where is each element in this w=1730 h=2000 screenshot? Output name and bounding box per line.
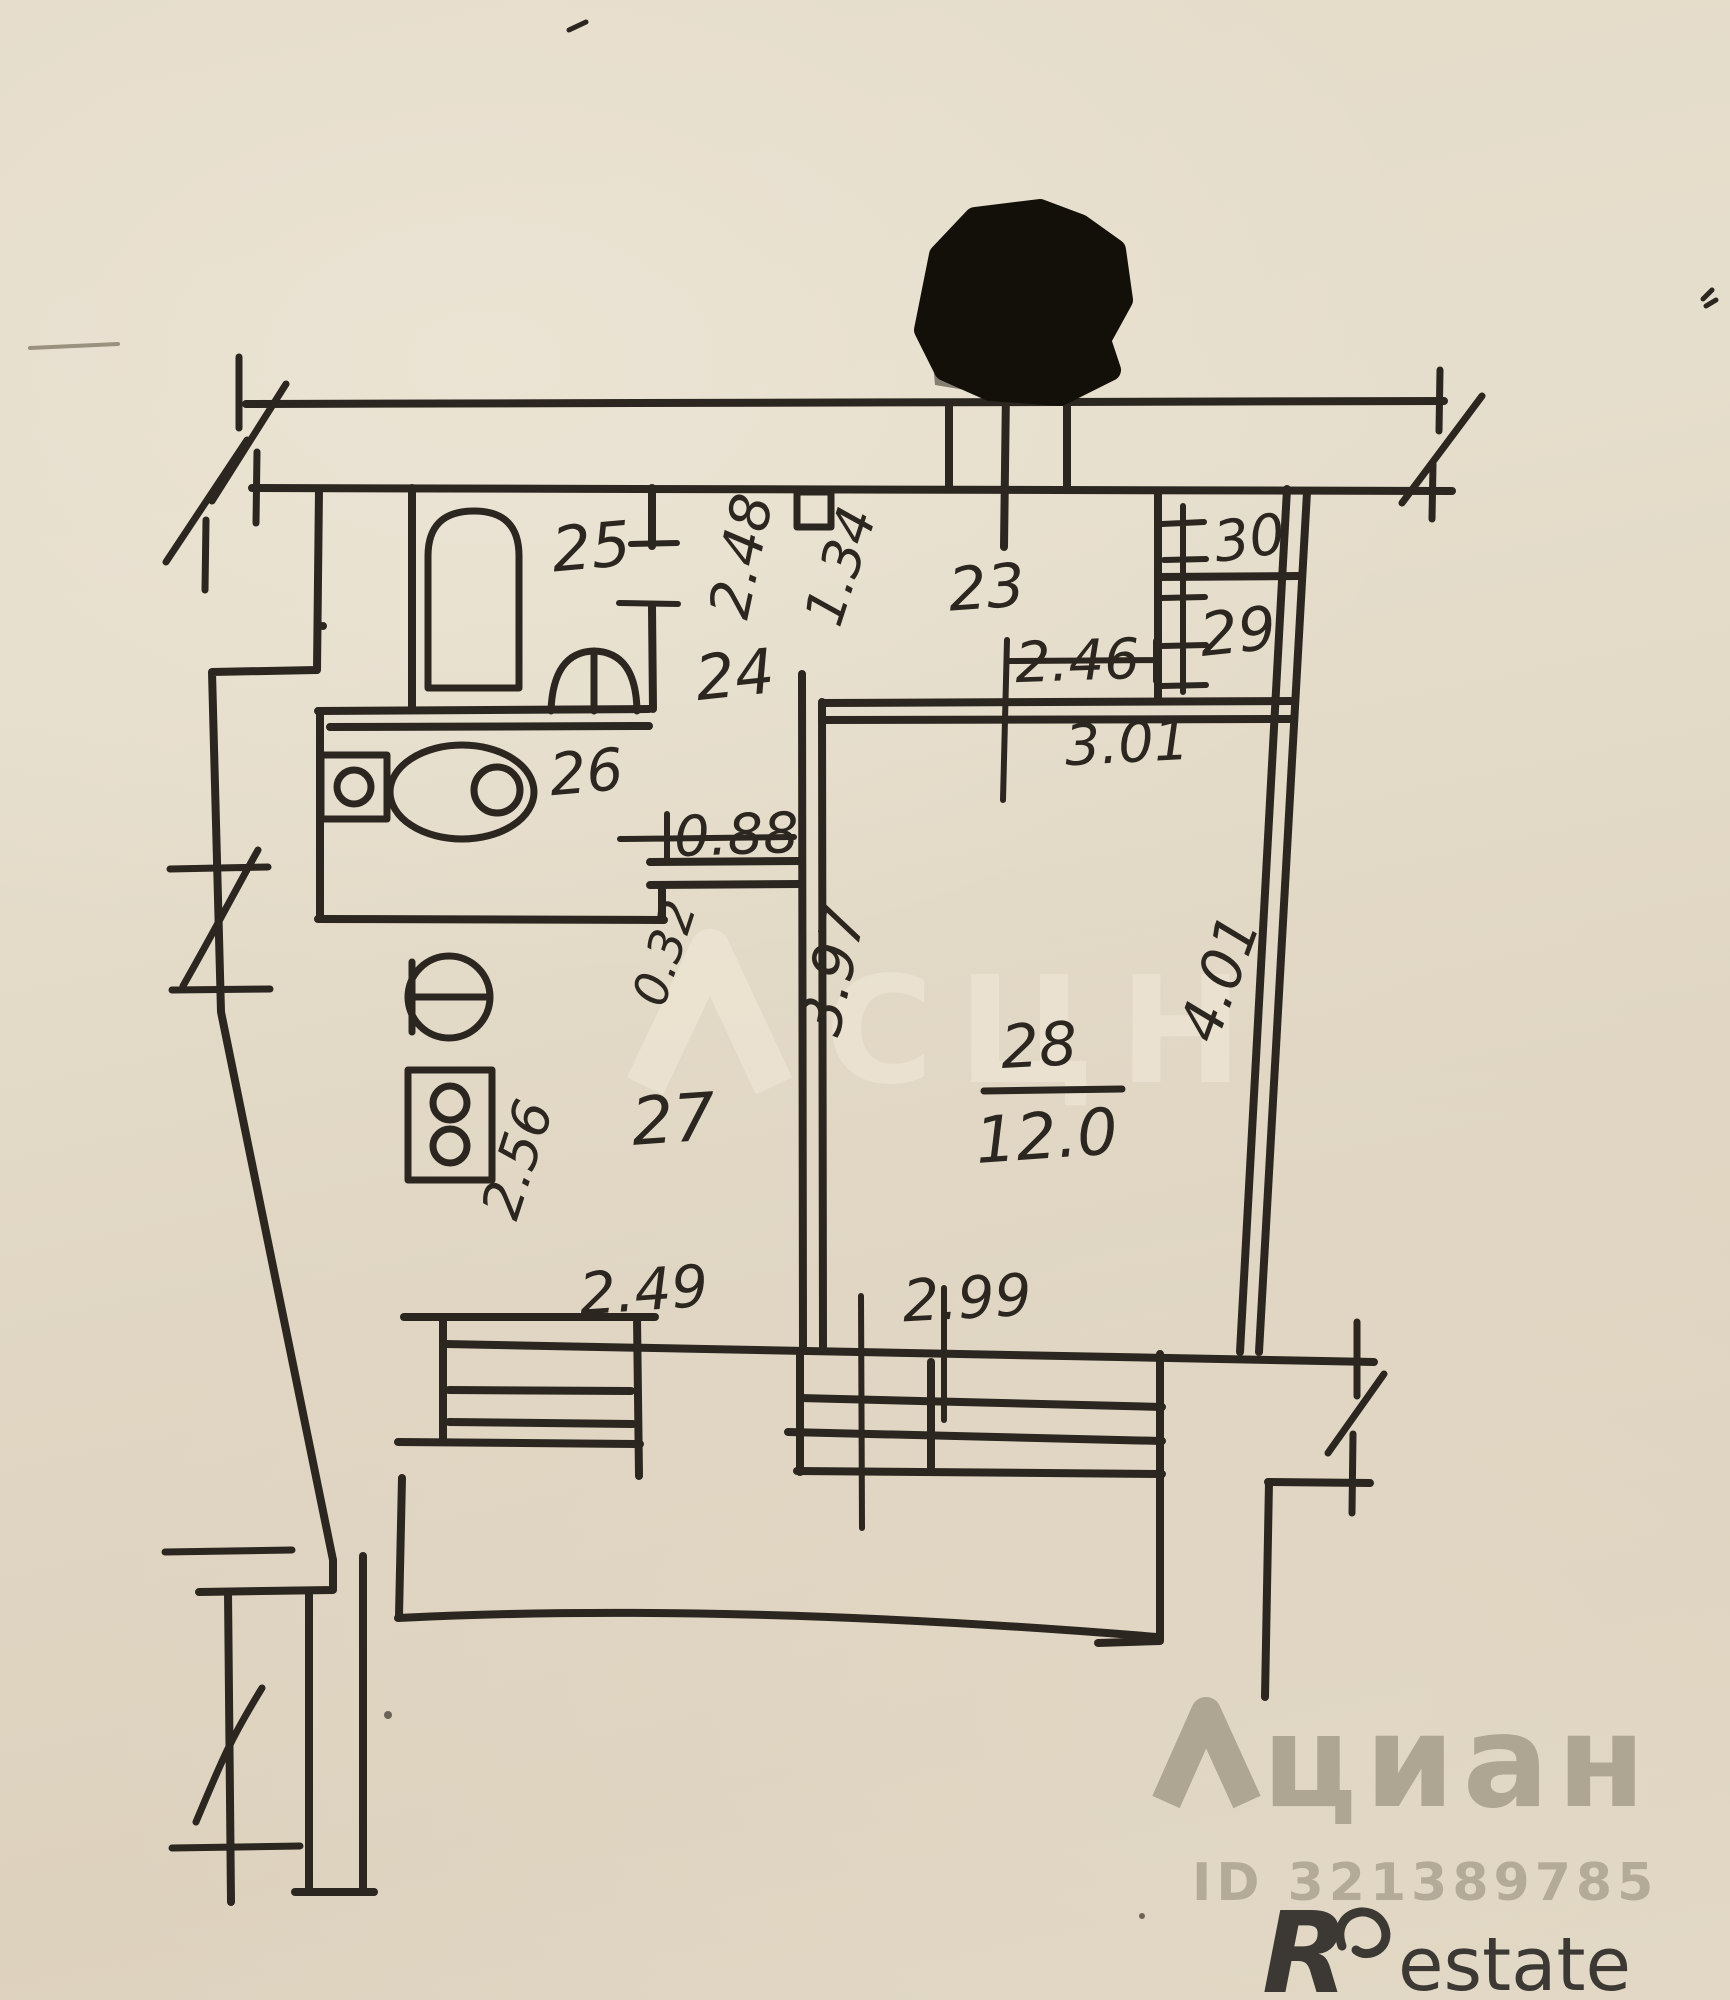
speck-dot-1 [319,622,327,630]
restate-logo-suffix: estate [1398,1922,1631,2000]
speck-right-edge [1703,290,1716,306]
watermark-cian: циан [1166,1688,1653,1837]
speck-top [569,22,586,30]
room-label-28: 28 [999,1009,1079,1083]
redaction-shape [925,210,1122,395]
dim-248: 2.48 [697,488,787,623]
cian-logo-text: циан [1262,1688,1653,1837]
floor-plan-drawing: СЦН [0,0,1730,2000]
stove-icon [408,1070,492,1180]
redaction-pointer-line [1004,390,1006,547]
room28-area-value: 12.0 [973,1095,1120,1179]
wall-top-outer [246,401,1444,404]
wall-corridor-kitchen-2 [650,884,800,885]
wall-closet-divider [1158,576,1298,577]
wall-kitchen-top [318,919,664,920]
hatch-top-right-icon [1402,370,1482,519]
kitchen-sink-icon [408,956,490,1038]
restate-logo-r: R [1262,1889,1348,2000]
dim-299: 2.99 [901,1261,1034,1336]
wall-left-bottom-cap [199,1560,333,1592]
dim-301: 3.01 [1063,708,1191,779]
speck-left-edge [30,344,118,348]
room28-window-mullion-1 [800,1398,1162,1407]
speck-dot-3 [1139,1913,1145,1919]
room-label-24: 24 [692,634,778,715]
ground-left-connector [399,1478,402,1616]
wall-top-inner [252,488,1452,491]
floor-plan-page: СЦН [0,0,1730,2000]
room-label-29: 29 [1196,593,1279,671]
hatch-top-left-icon [166,357,286,590]
redaction-blob [925,210,1122,395]
dimension-labels: 2.48 1.34 2.46 3.01 0.88 0.32 3.97 4.01 … [469,488,1273,1335]
room-label-26: 26 [547,735,626,809]
kitchen-window-sill [398,1442,640,1444]
bath-door-tick-1 [631,543,677,544]
toilet-icon [321,745,534,839]
room28-window-sill [797,1471,1162,1474]
cian-logo-icon [1166,1712,1247,1802]
dim-256: 2.56 [469,1092,566,1226]
lower-right-vertical [1265,1482,1269,1697]
room-label-23: 23 [946,550,1027,625]
dim-246: 2.46 [1014,627,1141,696]
wall-bath-toilet-divider-2 [330,726,649,727]
dim-column-closets [1162,506,1206,692]
wall-left-exterior [212,489,333,1560]
dim-088: 0.88 [673,801,800,870]
room28-window-mullion-2 [788,1432,1162,1441]
wall-bathroom-corridor [652,488,653,709]
washbasin-icon [551,651,637,711]
dim-249: 2.49 [577,1252,711,1329]
wall-bath-toilet-divider-1 [318,709,649,711]
wall-bottom-outer [445,1344,1374,1362]
room-label-30: 30 [1210,502,1290,576]
room-label-27: 27 [629,1078,718,1161]
wall-23-28-inner [822,719,1291,720]
kitchen-window-mullion-1 [449,1390,631,1391]
room-label-25: 25 [549,507,634,587]
bathtub-icon [428,511,519,688]
dim-134: 1.34 [792,499,889,633]
wall-23-28-outer [822,701,1291,703]
ground-line [398,1613,1157,1637]
kitchen-window-jamb-right [637,1318,639,1476]
speck-dot-2 [384,1711,392,1719]
fixtures [321,511,637,1180]
ground-right-connector [1098,1354,1160,1643]
room28-area-underline [984,1089,1122,1091]
dim-tick-window-long [861,1296,862,1528]
bath-door-tick-2 [619,603,678,604]
kitchen-window-mullion-2 [449,1422,633,1424]
